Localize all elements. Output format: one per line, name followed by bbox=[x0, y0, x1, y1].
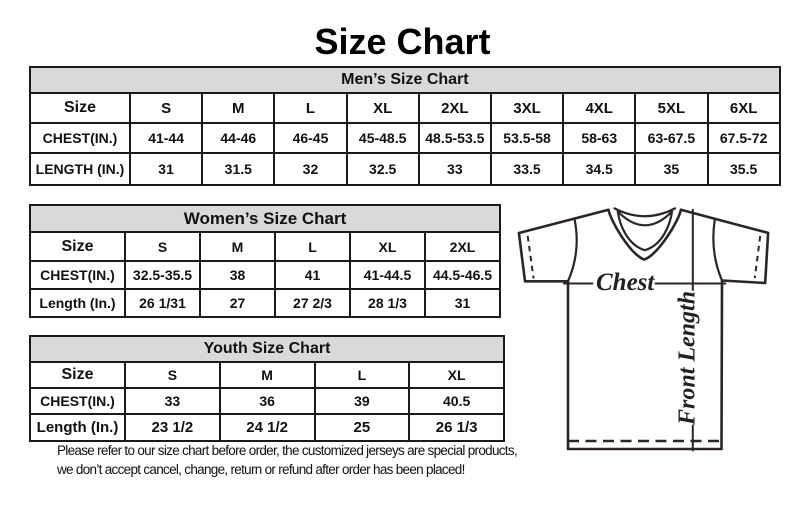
svg-text:Chest: Chest bbox=[596, 269, 655, 296]
svg-text:Front Length: Front Length bbox=[675, 291, 701, 426]
